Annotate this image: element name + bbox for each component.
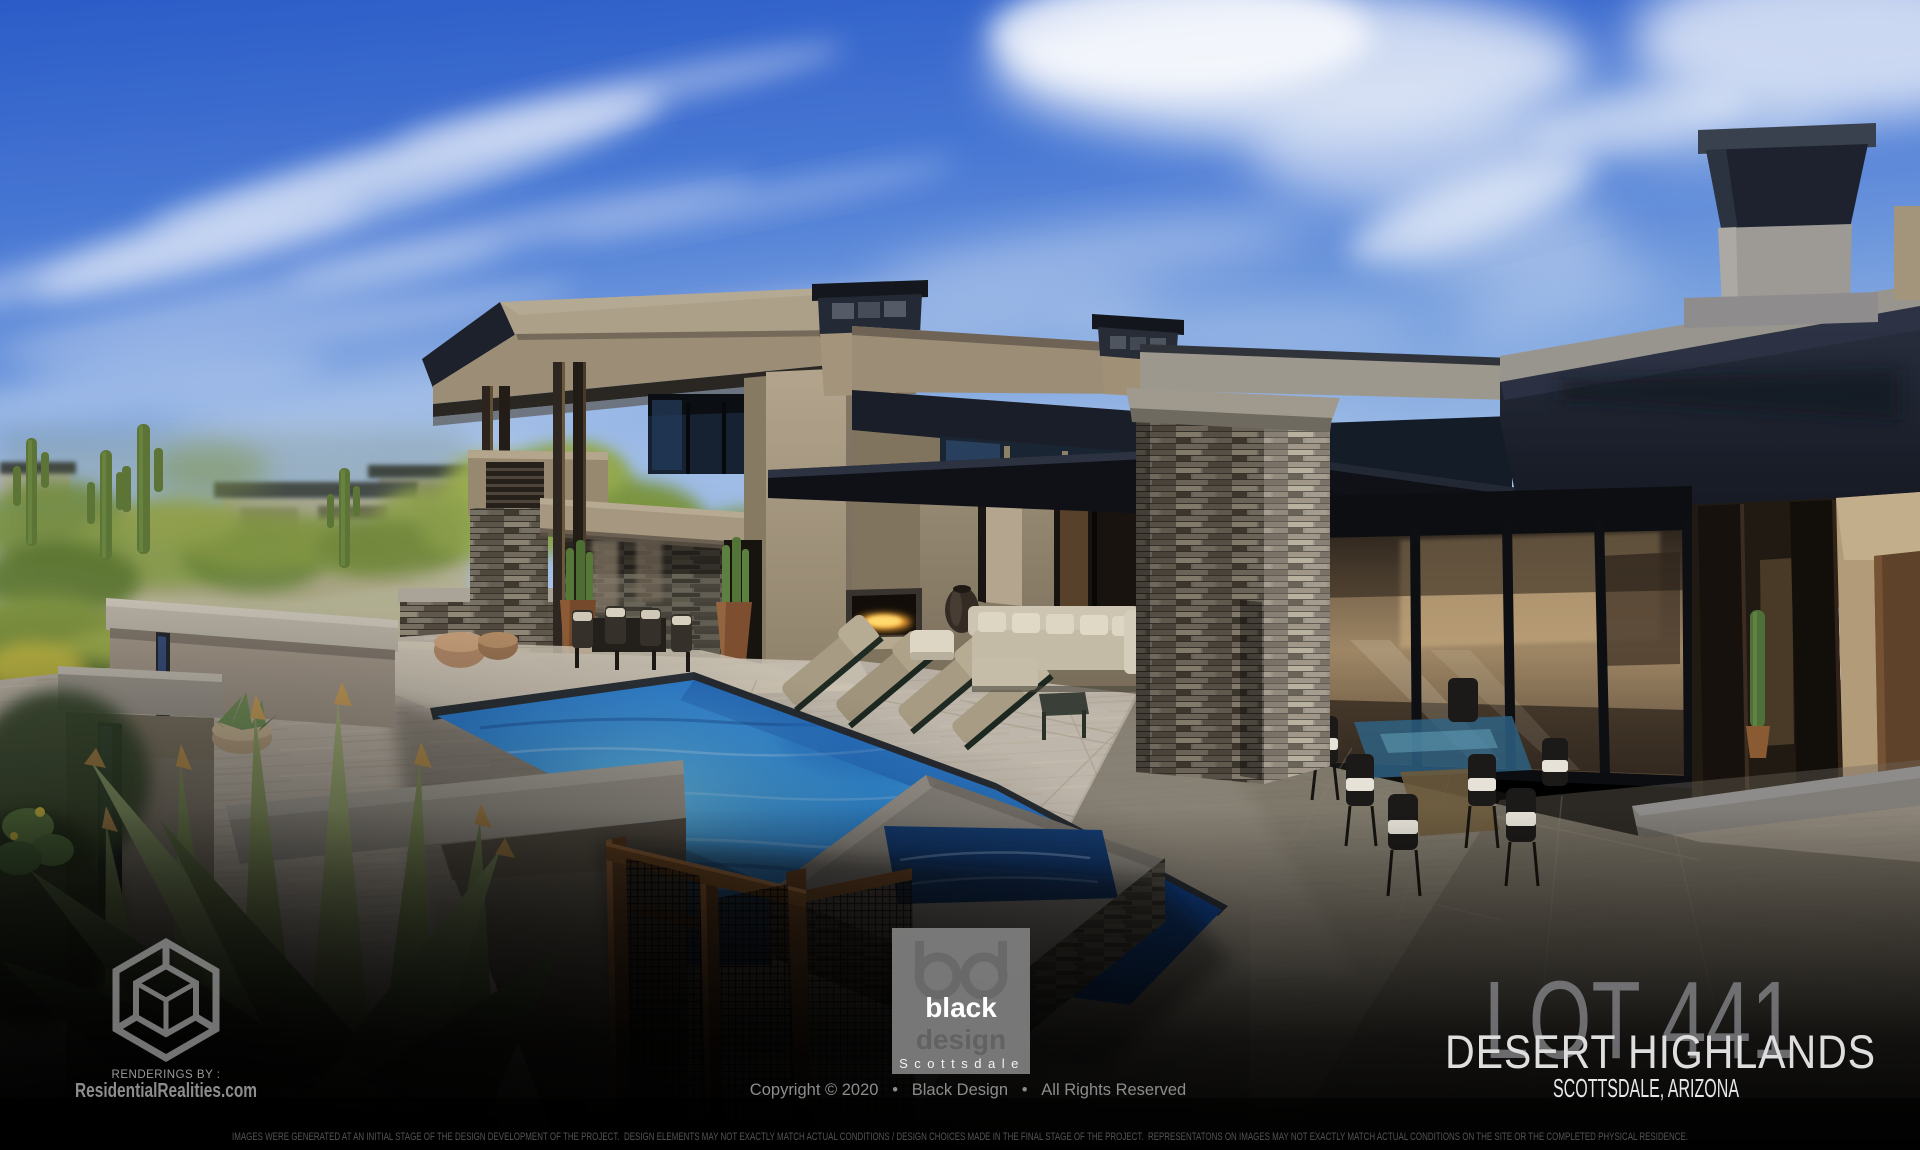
svg-text:DESERT HIGHLANDS: DESERT HIGHLANDS [1445, 1025, 1876, 1078]
svg-text:black: black [925, 992, 997, 1023]
svg-text:Scottsdale: Scottsdale [899, 1056, 1025, 1071]
svg-text:ResidentialRealities.com: ResidentialRealities.com [75, 1080, 257, 1102]
svg-text:IMAGES WERE GENERATED AT AN IN: IMAGES WERE GENERATED AT AN INITIAL STAG… [232, 1131, 1688, 1143]
svg-text:design: design [916, 1024, 1006, 1055]
svg-text:Copyright © 2020 • Black D: Copyright © 2020 • Black Design • All Ri… [750, 1081, 1186, 1099]
svg-text:SCOTTSDALE, ARIZONA: SCOTTSDALE, ARIZONA [1553, 1073, 1739, 1103]
